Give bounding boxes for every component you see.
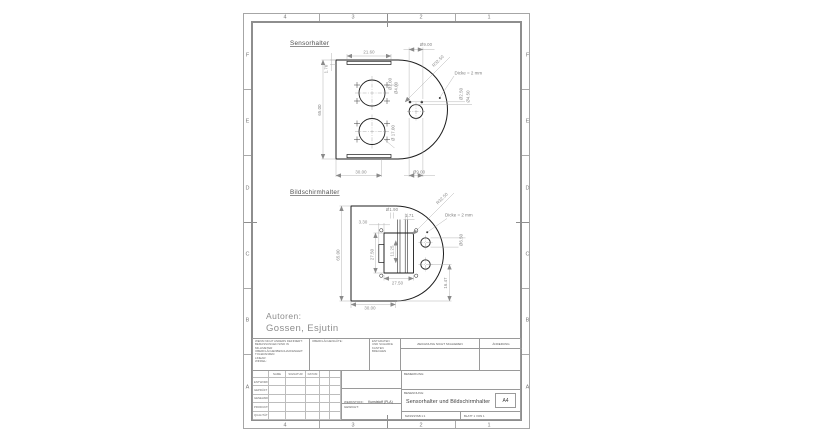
- grid-cell: [320, 386, 330, 394]
- row-label: ENTWORFEN: [253, 378, 269, 386]
- material-column: WERKSTOFF: Kunststoff (PLA) GEWICHT:: [342, 371, 402, 420]
- deburr-note: ENTGRATEN UND SCHARFE KANTEN BRECHEN: [370, 339, 401, 370]
- ext-line: [411, 102, 472, 105]
- scale-sheet-row: MASSSTAB:1:1 BLATT 1 VON 1: [402, 412, 520, 420]
- dim-text: Ø9.00: [413, 170, 426, 175]
- row-label: GEPRÜFT: [253, 386, 269, 394]
- bottom-slot: [347, 155, 391, 158]
- col-signature: SIGNATUR: [286, 371, 306, 378]
- slot-lines: [398, 220, 408, 273]
- surface-finish-label: OBERFLÄCHENGÜTE:: [310, 339, 370, 370]
- sheet-number-label: BLATT 1 VON 1: [461, 412, 520, 420]
- spacer-cell: [342, 371, 401, 389]
- weight-label: GEWICHT:: [344, 405, 359, 409]
- grid-cell: [286, 378, 306, 386]
- radius-leader: [405, 57, 450, 102]
- grid-cell: [330, 386, 341, 394]
- grid-cell: [253, 371, 269, 378]
- material-cell: WERKSTOFF: Kunststoff (PLA): [342, 389, 401, 404]
- dim-text: 3.30: [359, 220, 368, 225]
- row-label: QUALITÄT: [253, 412, 269, 420]
- part-outline: [336, 60, 447, 159]
- dim-text: Ø6.50: [459, 233, 464, 246]
- drawing-sheet: 4 3 2 1 4 3 2 1 F E D C B A F E D C B A …: [243, 13, 530, 429]
- title-block-top: WENN NICHT ANDERS DEFINIERT: BEMASSUNGEN…: [253, 339, 520, 371]
- grid-cell: [269, 395, 286, 403]
- dim-text: Ø 17.00: [391, 125, 396, 141]
- view-title: Bildschirmhalter: [290, 189, 340, 196]
- title-label: BENENNUNG:: [404, 391, 424, 395]
- dim-text: Ø1.90: [386, 207, 399, 212]
- revision-cell: ÄNDERUNG: [480, 339, 522, 370]
- scale-label: MASSSTAB:1:1: [402, 412, 461, 420]
- grid-cell: [269, 403, 286, 411]
- dim-text: Ø2.50: [459, 87, 464, 100]
- grid-cell: [330, 395, 341, 403]
- dim-text: 21.60: [363, 50, 375, 55]
- corner-hole: [415, 274, 418, 277]
- ext-line: [330, 60, 336, 65]
- leader-dot: [426, 231, 428, 233]
- ext-line: [379, 223, 384, 244]
- grid-cell: [286, 386, 306, 394]
- dim-text: Ø4.50: [466, 90, 471, 103]
- dim-text: Ø2.00: [388, 77, 393, 90]
- view-sensorhalter: Sensorhalter 21.60 1.70 65.00: [290, 40, 482, 177]
- centerline: [407, 103, 425, 121]
- note-text: Dicke = 2 mm: [445, 213, 473, 218]
- grid-cell: [306, 395, 320, 403]
- authors-label: Autoren:: [266, 311, 339, 321]
- dim-text: 16.47: [443, 277, 448, 289]
- dim-text: R32.50: [431, 54, 445, 68]
- grid-cell: [320, 412, 330, 420]
- grid-cell: [269, 386, 286, 394]
- comment-cell: BEMERKUNG:: [402, 371, 520, 390]
- pin-dot: [409, 101, 412, 104]
- leader-dot: [439, 97, 441, 99]
- title-block-bottom: NAME SIGNATUR DATUM ENTWORFEN GEPRÜFT GE…: [253, 371, 520, 420]
- tolerance-note: WENN NICHT ANDERS DEFINIERT: BEMASSUNGEN…: [253, 339, 310, 370]
- title-column: BEMERKUNG: BENENNUNG: Sensorhalter und B…: [402, 371, 520, 420]
- grid-cell: [330, 403, 341, 411]
- corner-hole: [415, 229, 418, 232]
- grid-cell: [269, 412, 286, 420]
- centerline: [355, 115, 389, 149]
- grid-cell: [306, 386, 320, 394]
- grid-cell: [306, 412, 320, 420]
- ext-line: [322, 60, 337, 159]
- col-name: NAME: [269, 371, 286, 378]
- row-label: GENEHMIGT: [253, 395, 269, 403]
- grid-cell: [320, 395, 330, 403]
- ext-line: [347, 54, 391, 59]
- authors-names: Gossen, Esjutin: [266, 323, 339, 334]
- corner-hole: [380, 229, 383, 232]
- dim-text: 11.25: [389, 245, 394, 256]
- comment-label: BEMERKUNG:: [404, 372, 424, 376]
- grid-cell: [320, 403, 330, 411]
- corner-hole: [380, 274, 383, 277]
- note-text: Dicke = 2 mm: [455, 71, 483, 76]
- dim-text: 27.50: [392, 281, 404, 286]
- top-slot: [347, 61, 391, 64]
- title-cell: BENENNUNG: Sensorhalter und Bildschirmha…: [402, 390, 520, 412]
- revision-label: ÄNDERUNG: [480, 339, 522, 349]
- grid-cell: [330, 371, 341, 378]
- grid-cell: [306, 378, 320, 386]
- dim-text: 1.70: [324, 64, 329, 73]
- view-bildschirmhalter: Bildschirmhalter Ø1.90 3.30 1.71 R32.5: [290, 189, 473, 311]
- weight-cell: GEWICHT:: [342, 404, 401, 420]
- grid-cell: [306, 403, 320, 411]
- grid-cell: [269, 378, 286, 386]
- ext-line: [409, 118, 423, 177]
- no-scale-cell: ZEICHNUNG NICHT SKALIEREN: [401, 339, 480, 370]
- notch-cutout: [379, 245, 384, 263]
- paper-size-badge: A4: [495, 393, 516, 408]
- view-title: Sensorhalter: [290, 40, 329, 47]
- grid-cell: [330, 378, 341, 386]
- grid-cell: [320, 371, 330, 378]
- dim-text: 1.71: [405, 213, 414, 218]
- ext-line: [391, 213, 394, 219]
- grid-cell: [330, 412, 341, 420]
- signature-grid: NAME SIGNATUR DATUM ENTWORFEN GEPRÜFT GE…: [253, 371, 342, 420]
- centerline: [355, 76, 389, 110]
- grid-cell: [286, 412, 306, 420]
- dim-text: 30.00: [355, 170, 367, 175]
- grid-cell: [286, 395, 306, 403]
- dim-text: 65.00: [317, 104, 322, 116]
- grid-cell: [320, 378, 330, 386]
- col-date: DATUM: [306, 371, 320, 378]
- title-block: WENN NICHT ANDERS DEFINIERT: BEMASSUNGEN…: [252, 338, 521, 420]
- no-scale-note: ZEICHNUNG NICHT SKALIEREN: [401, 339, 479, 349]
- dim-text: R32.50: [435, 191, 449, 205]
- dim-text: 27.50: [370, 248, 375, 260]
- dim-text: Ø9.00: [420, 42, 433, 47]
- dim-text: 65.00: [336, 249, 341, 261]
- row-label: PRODUKTION: [253, 403, 269, 411]
- dim-text: Ø4.00: [394, 81, 399, 94]
- grid-cell: [286, 403, 306, 411]
- ext-line: [340, 206, 352, 301]
- dim-text: 30.00: [364, 306, 376, 311]
- drawing-title: Sensorhalter und Bildschirmhalter: [406, 399, 490, 405]
- authors-note: Autoren: Gossen, Esjutin: [266, 311, 339, 334]
